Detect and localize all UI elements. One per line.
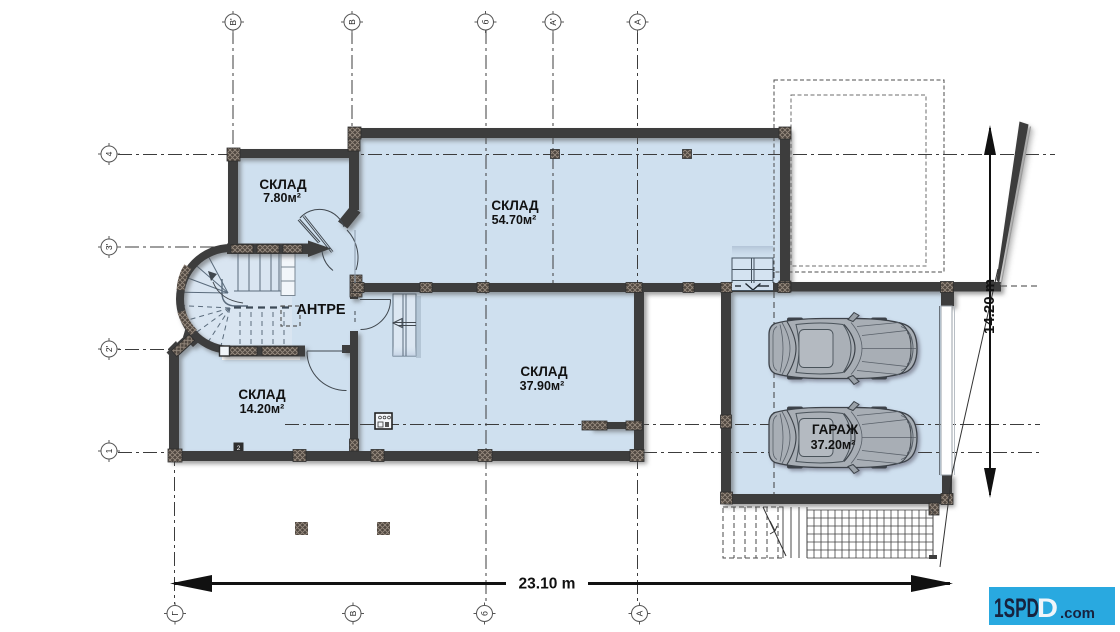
svg-text:1: 1 — [104, 448, 114, 453]
svg-text:СКЛАД: СКЛАД — [238, 387, 286, 402]
svg-text:37.90м²: 37.90м² — [520, 379, 565, 393]
svg-text:В: В — [348, 610, 358, 616]
svg-text:.com: .com — [1060, 605, 1095, 622]
svg-text:А': А' — [548, 18, 558, 26]
svg-text:23.10 m: 23.10 m — [519, 576, 576, 593]
svg-text:СКЛАД: СКЛАД — [259, 177, 307, 192]
svg-text:ГАРАЖ: ГАРАЖ — [812, 422, 859, 437]
svg-text:А: А — [633, 19, 643, 25]
svg-text:3': 3' — [104, 243, 114, 250]
svg-text:2': 2' — [104, 345, 114, 352]
svg-text:б: б — [480, 611, 490, 616]
svg-text:В': В' — [228, 18, 238, 26]
svg-text:37.20м²: 37.20м² — [811, 438, 856, 452]
svg-text:4: 4 — [104, 151, 114, 156]
svg-text:2: 2 — [237, 445, 241, 452]
svg-text:СКЛАД: СКЛАД — [520, 364, 568, 379]
svg-text:СКЛАД: СКЛАД — [491, 198, 539, 213]
svg-text:В: В — [347, 19, 357, 25]
svg-text:7.80м²: 7.80м² — [263, 191, 301, 205]
svg-text:14.20м²: 14.20м² — [240, 402, 285, 416]
svg-text:АНТРЕ: АНТРЕ — [296, 302, 345, 318]
svg-text:Г: Г — [170, 611, 180, 616]
svg-text:1SPD: 1SPD — [994, 593, 1039, 623]
svg-text:б: б — [481, 19, 491, 24]
svg-text:14.20 m: 14.20 m — [981, 279, 998, 334]
svg-text:А: А — [635, 610, 645, 616]
svg-text:54.70м²: 54.70м² — [492, 213, 537, 227]
svg-text:D: D — [1037, 593, 1058, 623]
